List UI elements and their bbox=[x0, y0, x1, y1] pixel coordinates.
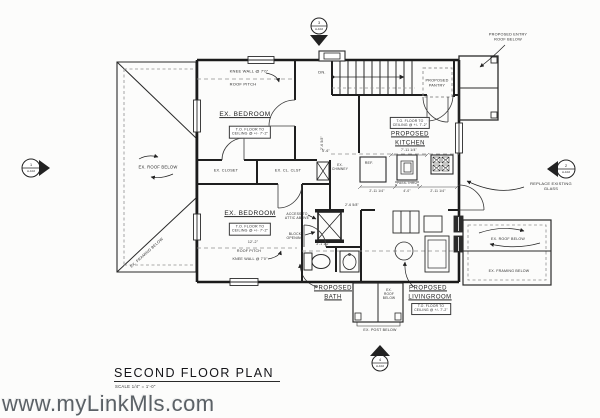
note-ex-roof-below-bottom: EX. ROOF BELOW bbox=[383, 289, 396, 301]
note-dn: DN. bbox=[318, 71, 326, 76]
note-access-attic: ACCESS TO ATTIC ABOVE bbox=[285, 212, 309, 220]
dim-5-6: 5'-6" bbox=[322, 149, 330, 153]
deck-right bbox=[463, 220, 551, 285]
room-label-bath-line1: PROPOSED bbox=[314, 285, 352, 292]
room-label-ex-bedroom-bottom: EX. BEDROOM bbox=[224, 210, 275, 218]
dim-4-0: 4'-0" bbox=[403, 190, 410, 194]
entry-roof bbox=[459, 56, 498, 120]
note-replace-existing-glass: REPLACE EXISTING GLASS bbox=[527, 182, 576, 192]
room-label-living-line1: PROPOSED bbox=[409, 285, 447, 292]
bottom-bump bbox=[353, 283, 403, 326]
note-ref: REF. bbox=[365, 161, 374, 165]
room-label-living-line2: LIVINGROOM bbox=[408, 294, 451, 301]
note-knee-wall-top: KNEE WALL @ 7'0" bbox=[230, 70, 269, 75]
note-ex-framing-below-right: EX. FRAMING BELOW bbox=[489, 269, 530, 273]
sink-basin-icon bbox=[343, 255, 356, 270]
section-marker-top-sheet: A-102 bbox=[315, 27, 323, 31]
note-ex-roof-below-right: EX. ROOF BELOW bbox=[491, 237, 525, 241]
note-pass-thru: PASS-THRU bbox=[397, 182, 417, 186]
floor-plan-drawing bbox=[0, 0, 600, 418]
note-ex-chimney: EX. CHIMNEY bbox=[332, 164, 348, 172]
section-marker-top-number: 3 bbox=[318, 21, 320, 25]
room-label-kitchen-line2: KITCHEN bbox=[395, 140, 425, 147]
section-marker-right-sheet: A-102 bbox=[562, 170, 570, 174]
dim-2-11-b: 2'-11 1/4" bbox=[430, 190, 445, 194]
livingroom-furniture bbox=[393, 211, 449, 272]
room-label-ex-bedroom-top: EX. BEDROOM bbox=[219, 111, 270, 119]
section-marker-bottom-sheet: A-102 bbox=[376, 364, 384, 368]
drawing-title: SECOND FLOOR PLAN bbox=[114, 366, 280, 382]
section-marker-bottom-number: 4 bbox=[379, 358, 381, 362]
dim-2-6-attic: 2'-6 5/8" bbox=[345, 204, 359, 208]
bath-fixtures bbox=[304, 251, 359, 272]
ceiling-note-living: T.O. FLOOR TO CEILING @ +/- 7'-2" bbox=[411, 303, 451, 315]
note-roof-pitch-top: ROOF PITCH bbox=[230, 83, 257, 88]
room-label-pantry: PROPOSED PANTRY bbox=[425, 78, 448, 87]
room-label-closet-b: EX. CL. CLST bbox=[275, 169, 301, 174]
note-block-opening: BLOCK OPENING bbox=[286, 232, 303, 240]
note-proposed-entry-roof: PROPOSED ENTRY ROOF BELOW bbox=[489, 32, 527, 41]
note-roof-pitch-bottom: ROOF PITCH bbox=[237, 249, 261, 253]
top-bump bbox=[319, 51, 345, 61]
note-knee-wall-bottom: KNEE WALL @ 7'0" bbox=[232, 257, 267, 261]
dim-12-2: 12'-2" bbox=[248, 240, 258, 244]
section-marker-left-sheet: A-102 bbox=[27, 169, 35, 173]
section-marker-right-icon bbox=[547, 160, 575, 178]
drawing-scale: SCALE 1/4" = 1'-0" bbox=[115, 384, 156, 389]
section-marker-right-number: 2 bbox=[565, 164, 567, 168]
chimney-icon bbox=[317, 162, 329, 180]
floor-plan-page: 3 A-102 1 A-102 2 A-102 4 A-102 KNEE WAL… bbox=[0, 0, 600, 418]
attic-access-icon bbox=[315, 209, 344, 243]
ceiling-note-kitchen: T.O. FLOOR TO CEILING @ +/- 7'-2" bbox=[390, 117, 430, 129]
dim-7-11: 7'-11 1/4" bbox=[401, 148, 417, 152]
dim-2-11-a: 2'-11 1/4" bbox=[369, 190, 384, 194]
note-ex-post-below: EX. POST BELOW bbox=[363, 328, 396, 332]
toilet-tank-icon bbox=[304, 253, 312, 270]
ceiling-note-bedroom-top: T.O. FLOOR TO CEILING @ +/- 7'-2" bbox=[229, 126, 271, 139]
dim-2-6-vertical: 2'-6 5/8" bbox=[321, 136, 325, 150]
room-label-bath-line2: BATH bbox=[324, 294, 342, 301]
toilet-bowl-icon bbox=[312, 255, 330, 269]
dim-3-1: 3'-1 1/2" bbox=[316, 243, 330, 247]
room-label-closet-a: EX. CLOSET bbox=[214, 169, 238, 174]
stairs-icon bbox=[332, 61, 415, 94]
ceiling-note-bedroom-bottom: T.O. FLOOR TO CEILING @ +/- 7'-2" bbox=[229, 223, 271, 236]
room-label-kitchen-line1: PROPOSED bbox=[391, 131, 429, 138]
section-marker-left-number: 1 bbox=[30, 163, 32, 167]
section-marker-left-icon bbox=[22, 159, 50, 177]
note-ex-roof-below-left: EX. ROOF BELOW bbox=[138, 164, 177, 169]
watermark: www.myLinkMls.com bbox=[2, 391, 215, 417]
